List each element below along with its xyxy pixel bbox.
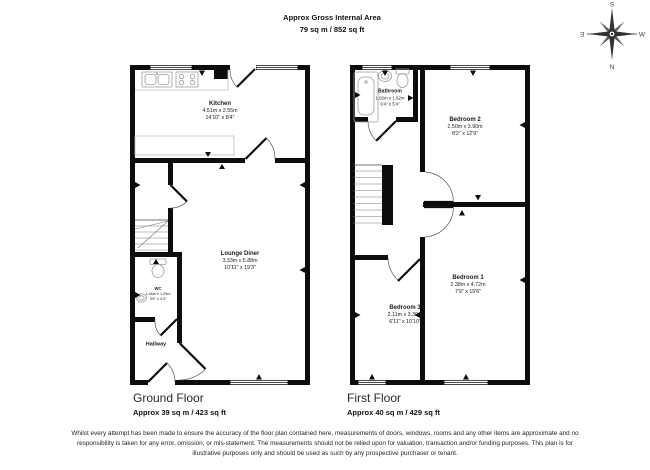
room-label-bedroom-3: Bedroom 3 2.11m x 3.30m 6'11" x 10'10" xyxy=(388,304,423,326)
room-label-bathroom: Bathroom 1.92m x 1.62m 6'4" x 5'4" xyxy=(375,89,404,108)
page-title: Approx Gross Internal Area 79 sq m / 852… xyxy=(180,12,484,37)
chimney-breast xyxy=(214,70,228,79)
room-label-kitchen: Kitchen 4.51m x 2.55m 14'10" x 8'4" xyxy=(202,100,237,122)
gross-area-value: 79 sq m / 852 sq ft xyxy=(180,24,484,36)
ground-floor-plan: Kitchen 4.51m x 2.55m 14'10" x 8'4" Loun… xyxy=(130,65,310,385)
first-floor-plan: Bathroom 1.92m x 1.62m 6'4" x 5'4" Bedro… xyxy=(350,65,530,385)
room-label-bedroom-1: Bedroom 1 2.38m x 4.72m 7'9" x 15'6" xyxy=(450,274,485,296)
gross-area-title: Approx Gross Internal Area xyxy=(180,12,484,24)
bathtub-icon xyxy=(354,72,378,122)
room-label-bedroom-2: Bedroom 2 2.50m x 3.90m 8'2" x 12'9" xyxy=(447,116,482,138)
first-floor-area: Approx 40 sq m / 429 sq ft xyxy=(347,408,547,417)
toilet-icon xyxy=(150,259,166,278)
stairs xyxy=(353,165,382,223)
compass-east-label: E xyxy=(579,32,584,39)
hob-icon xyxy=(176,72,198,87)
compass-north-label: N xyxy=(610,64,615,71)
ground-floor-area: Approx 39 sq m / 423 sq ft xyxy=(133,408,333,417)
back-door-opening xyxy=(230,65,256,70)
front-door-opening xyxy=(148,380,175,385)
first-floor-caption: First Floor Approx 40 sq m / 429 sq ft xyxy=(347,391,547,417)
compass-south-label: S xyxy=(610,2,615,9)
walls xyxy=(350,65,530,385)
compass-west-label: W xyxy=(639,32,646,39)
toilet-icon xyxy=(396,69,409,88)
stairs xyxy=(135,220,168,250)
room-label-wc: WC 1.06m x 1.29m 3'6" x 4'3" xyxy=(145,286,170,302)
floorplan-page: Approx Gross Internal Area 79 sq m / 852… xyxy=(0,0,650,470)
room-label-hallway: Hallway xyxy=(146,341,166,348)
ground-floor-caption: Ground Floor Approx 39 sq m / 423 sq ft xyxy=(133,391,333,417)
room-label-lounge-diner: Lounge Diner 3.33m x 5.88m 10'11" x 19'3… xyxy=(221,250,260,272)
first-floor-title: First Floor xyxy=(347,391,547,405)
compass-rose-icon: S N E W xyxy=(576,0,648,72)
kitchen-sink-icon xyxy=(142,72,172,87)
disclaimer-text: Whilst every attempt has been made to en… xyxy=(63,429,587,459)
measure-arrows xyxy=(355,71,525,380)
ground-floor-title: Ground Floor xyxy=(133,391,333,405)
